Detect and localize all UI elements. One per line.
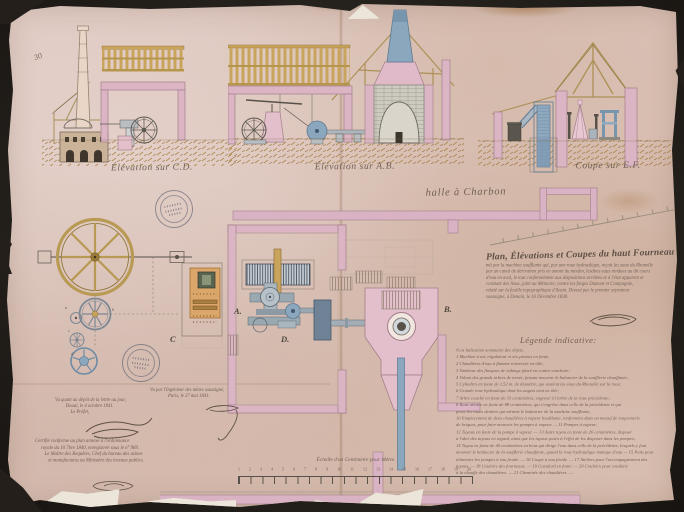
pink-column <box>625 88 637 166</box>
svg-text:c: c <box>68 328 70 333</box>
pink-pilaster <box>365 85 374 143</box>
scanned-plan-photograph: Élévation sur C.D. <box>0 0 684 512</box>
dust-box-and-duct <box>507 107 538 141</box>
tiny-gear-icon <box>70 333 84 347</box>
pink-pilaster <box>424 85 433 143</box>
drive-shaft <box>327 130 371 134</box>
wall-tab <box>448 220 458 233</box>
plan-label-a: A. <box>234 306 242 316</box>
medium-gear-icon <box>80 299 111 330</box>
legend-heading: Légende indicative: <box>520 335 597 345</box>
title-description: mû par la machine soufflante qui, par un… <box>486 262 682 300</box>
legend-list: N.os Indication sommaire des objets.1 Ma… <box>456 347 682 475</box>
flywheel-icon <box>131 117 157 143</box>
water-channel <box>398 358 405 470</box>
scale-bar <box>238 476 473 484</box>
aged-paper-sheet: Élévation sur C.D. <box>0 0 684 512</box>
pink-post <box>494 112 502 158</box>
fence-slats <box>102 46 184 72</box>
scale-caption: Échelle d'un Centimètre pour Mètre. <box>296 456 416 462</box>
scale-tick-numbers-wrap: 1 2 3 4 5 6 7 8 9 10 11 12 13 14 15 16 1… <box>238 467 472 473</box>
pink-post <box>178 90 185 140</box>
pink-post <box>101 90 108 142</box>
halle-frame <box>540 188 547 220</box>
pink-post <box>344 94 352 142</box>
plan-label-b: B. <box>444 304 452 314</box>
elevation-ab-drawing <box>228 8 464 176</box>
scale-tick-numbers: 1 2 3 4 5 6 7 8 9 10 11 12 13 14 15 16 1… <box>238 467 471 473</box>
elevation-cd-drawing <box>40 24 240 176</box>
gear-study-drawing: abcd <box>30 205 200 377</box>
pink-post <box>442 60 450 140</box>
stairs-hatch <box>330 277 352 290</box>
reference-letters: abcd <box>65 305 115 356</box>
torn-paper-bit <box>47 488 120 512</box>
fence-slats <box>228 45 350 86</box>
stain <box>470 0 580 18</box>
chimney <box>76 26 90 128</box>
blue-wheel-icon <box>71 348 97 374</box>
condenser-box <box>314 300 331 340</box>
caption-coupe-ef: Coupe sur E.F. <box>548 160 668 171</box>
pink-column <box>556 91 567 167</box>
furnace-ab <box>365 10 433 143</box>
halle-frame <box>540 188 597 195</box>
coupe-ef-drawing <box>478 34 676 180</box>
plan-label-d: D. <box>281 334 289 344</box>
caption-elevation-cd: Élévation sur C.D. <box>92 162 212 173</box>
title-signature-flourish <box>586 310 642 330</box>
caption-elevation-ab: Élévation sur A.B. <box>290 161 420 172</box>
large-flywheel-icon <box>58 220 133 295</box>
entablature-beam <box>228 86 352 94</box>
upper-masonry <box>374 62 424 85</box>
entablature-beam <box>101 82 185 90</box>
interior-machinery <box>567 100 620 140</box>
scale-caption-wrap: Échelle d'un Centimètre pour Mètre. <box>296 456 416 466</box>
svg-text:a: a <box>65 305 68 310</box>
svg-text:b: b <box>112 307 115 312</box>
pyramid-stand <box>572 104 588 139</box>
pink-post <box>228 94 235 144</box>
title-block: Plan, Élévations et Coupes du haut Fourn… <box>486 250 682 330</box>
stairs-hatch <box>356 271 382 283</box>
halle-frame <box>591 188 598 220</box>
certification-note: Certifié conforme au plan annexé à l'ord… <box>35 438 213 480</box>
stairs-hatch <box>228 335 238 355</box>
furnace-door <box>396 132 403 143</box>
drawing-title: Plan, Élévations et Coupes du haut Fourn… <box>486 247 682 262</box>
